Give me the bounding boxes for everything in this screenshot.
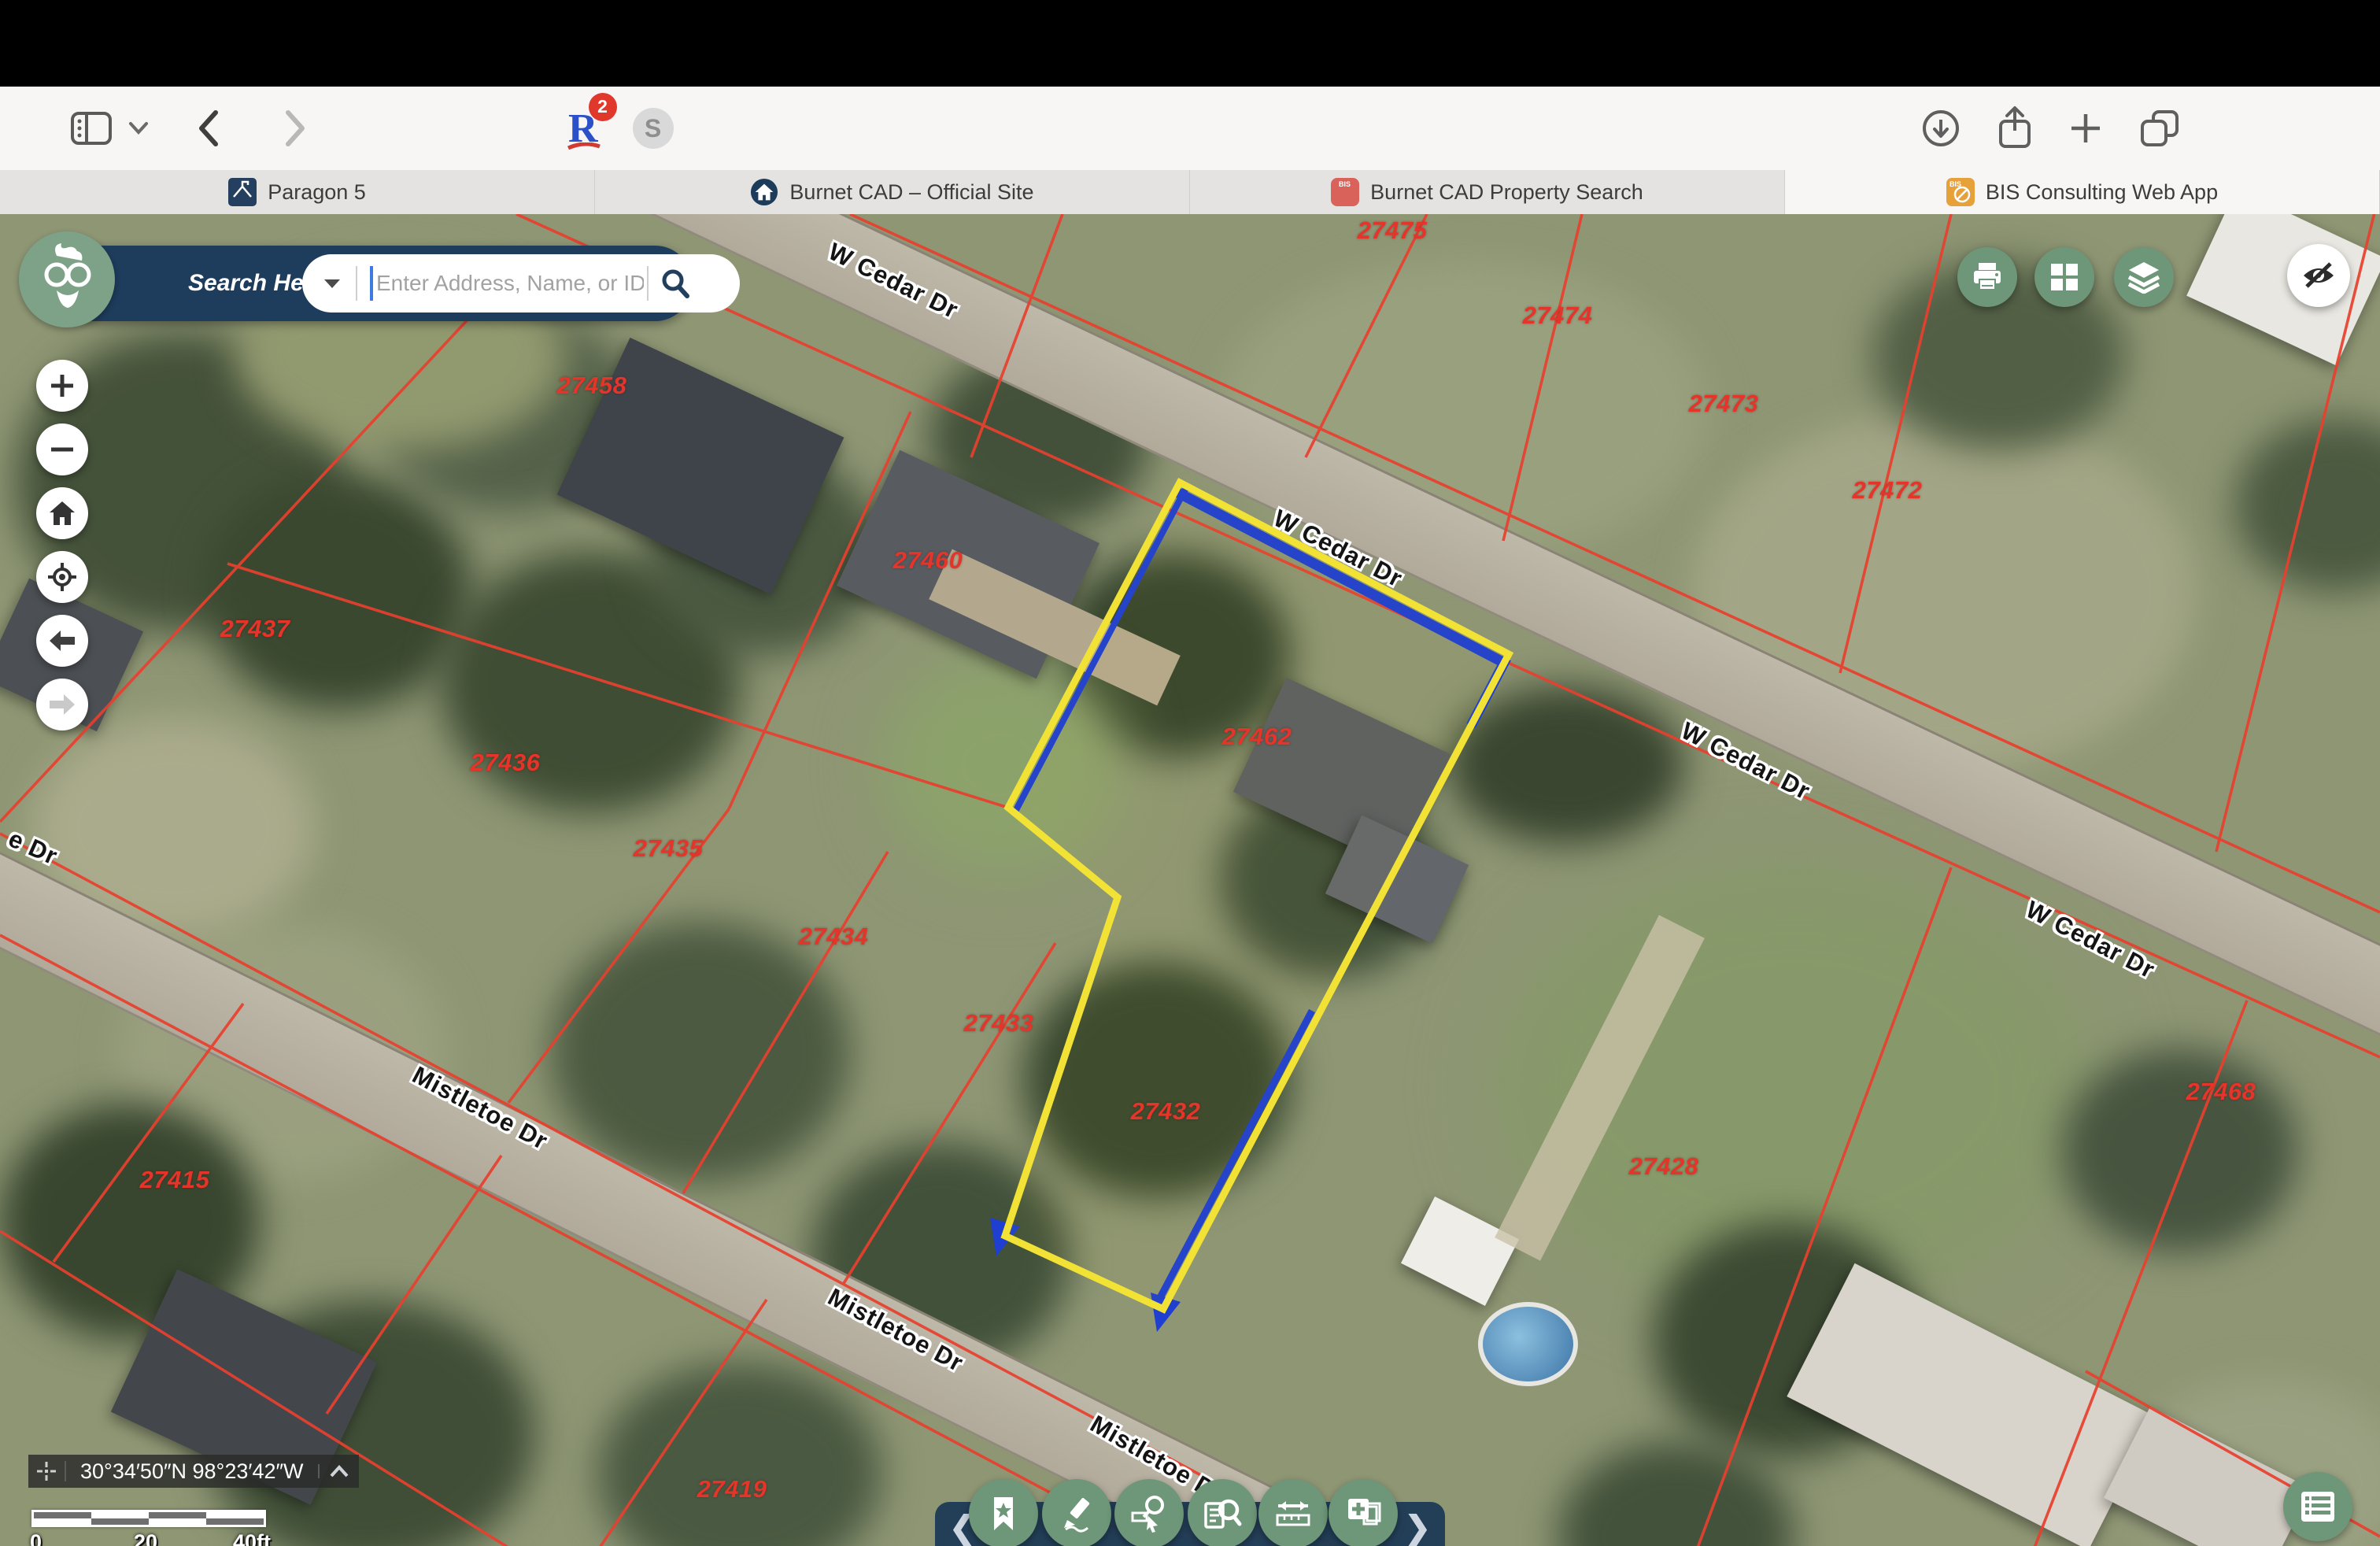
extension-s-button[interactable]: S xyxy=(633,108,674,149)
scale-label-40ft: 40ft xyxy=(233,1530,271,1546)
tab-overview-button[interactable] xyxy=(2138,107,2182,150)
extension-badge: 2 xyxy=(589,93,617,121)
favicon-bis-red-icon: BIS xyxy=(1331,178,1359,206)
parcel-label: 27473 xyxy=(1689,390,1759,418)
bookmarks-button[interactable] xyxy=(969,1479,1038,1546)
dropdown-icon[interactable] xyxy=(323,277,342,290)
measure-button[interactable] xyxy=(1258,1479,1328,1546)
crosshair-icon[interactable] xyxy=(28,1461,66,1481)
browser-toolbar: R 2 S gis.bisclient.com A文 xyxy=(0,87,2380,171)
collapse-icon[interactable] xyxy=(318,1464,359,1478)
dock-scroll-right-icon[interactable]: ❯ xyxy=(1404,1510,1431,1546)
share-button[interactable] xyxy=(1996,105,2034,151)
coordinate-readout: 30°34′50″N 98°23′42″W xyxy=(66,1459,318,1484)
layers-button[interactable] xyxy=(2114,247,2174,307)
list-icon xyxy=(2300,1490,2336,1523)
tab-label: BIS Consulting Web App xyxy=(1986,180,2218,205)
extension-r-button[interactable]: R 2 xyxy=(568,105,598,152)
results-list-button[interactable] xyxy=(2283,1472,2352,1541)
extension-s-glyph: S xyxy=(645,114,661,143)
home-extent-button[interactable] xyxy=(36,487,88,539)
zoom-in-button[interactable] xyxy=(36,360,88,412)
forward-button[interactable] xyxy=(282,108,309,149)
new-tab-button[interactable] xyxy=(2068,111,2103,146)
parcel-label: 27460 xyxy=(893,546,963,575)
parcel-label: 27458 xyxy=(557,372,627,400)
add-data-icon xyxy=(1343,1494,1383,1533)
scale-label-0: 0 xyxy=(30,1530,42,1546)
parcel-label: 27433 xyxy=(964,1009,1034,1037)
text-caret xyxy=(370,266,373,301)
measure-icon xyxy=(1273,1496,1313,1531)
sidebar-toggle-button[interactable] xyxy=(69,110,113,146)
scale-bar xyxy=(31,1510,266,1527)
pool xyxy=(1478,1302,1578,1386)
tab-bis-web-app[interactable]: BIS BIS Consulting Web App xyxy=(1785,170,2380,214)
add-data-button[interactable] xyxy=(1329,1479,1398,1546)
map-canvas[interactable]: 2747527474274732747227458274602743727436… xyxy=(0,214,2380,1546)
parcel-label: 27462 xyxy=(1222,723,1292,751)
favicon-bis-orange-icon: BIS xyxy=(1946,178,1975,206)
select-button[interactable] xyxy=(1114,1479,1184,1546)
coordinate-bar: 30°34′50″N 98°23′42″W xyxy=(28,1455,359,1488)
tab-label: Paragon 5 xyxy=(268,180,366,205)
hide-ui-button[interactable] xyxy=(2287,244,2350,307)
select-magnifier-icon xyxy=(1129,1494,1169,1533)
record-search-icon xyxy=(1203,1494,1242,1533)
bookmark-star-icon xyxy=(988,1496,1019,1532)
draw-button[interactable] xyxy=(1042,1479,1111,1546)
parcel-label: 27428 xyxy=(1629,1152,1699,1181)
parcel-label: 27432 xyxy=(1131,1097,1201,1126)
parcel-label: 27472 xyxy=(1853,476,1923,505)
back-button[interactable] xyxy=(195,108,222,149)
basemap-grid-button[interactable] xyxy=(2034,247,2094,307)
parcel-label: 27437 xyxy=(220,615,290,643)
parcel-label: 27434 xyxy=(799,923,869,951)
svg-text:BIS: BIS xyxy=(1339,180,1351,188)
print-button[interactable] xyxy=(1957,247,2017,307)
parcel-label: 27419 xyxy=(697,1475,767,1503)
record-search-button[interactable] xyxy=(1188,1479,1257,1546)
bis-mascot-logo xyxy=(19,231,115,327)
parcel-label: 27435 xyxy=(634,834,704,863)
parcel-label: 27468 xyxy=(2186,1078,2256,1106)
zoom-out-button[interactable] xyxy=(36,423,88,475)
tab-label: Burnet CAD Property Search xyxy=(1370,180,1643,205)
tab-paragon5[interactable]: Paragon 5 xyxy=(0,170,595,214)
sidebar-chevron-icon[interactable] xyxy=(128,120,150,136)
previous-extent-button[interactable] xyxy=(36,615,88,667)
parcel-label: 27475 xyxy=(1358,216,1428,245)
favicon-home-icon xyxy=(750,178,778,206)
search-pill: Search Here: xyxy=(58,246,693,321)
tab-label: Burnet CAD – Official Site xyxy=(789,180,1033,205)
downloads-button[interactable] xyxy=(1920,108,1961,149)
parcel-label: 27415 xyxy=(140,1166,210,1194)
tab-bar: Paragon 5 Burnet CAD – Official Site BIS… xyxy=(0,170,2380,214)
scale-label-20: 20 xyxy=(134,1530,157,1546)
search-input-box xyxy=(302,254,740,313)
macos-menubar xyxy=(0,0,2380,87)
locate-button[interactable] xyxy=(36,551,88,603)
next-extent-button[interactable] xyxy=(36,679,88,730)
parcel-label: 27474 xyxy=(1523,301,1593,330)
favicon-paragon-icon xyxy=(228,178,257,206)
search-icon[interactable] xyxy=(660,268,691,299)
tab-burnet-property-search[interactable]: BIS Burnet CAD Property Search xyxy=(1190,170,1785,214)
tab-burnet-cad-site[interactable]: Burnet CAD – Official Site xyxy=(595,170,1190,214)
parcel-label: 27436 xyxy=(471,749,541,777)
search-input[interactable] xyxy=(375,270,645,297)
pencil-icon xyxy=(1058,1495,1096,1533)
